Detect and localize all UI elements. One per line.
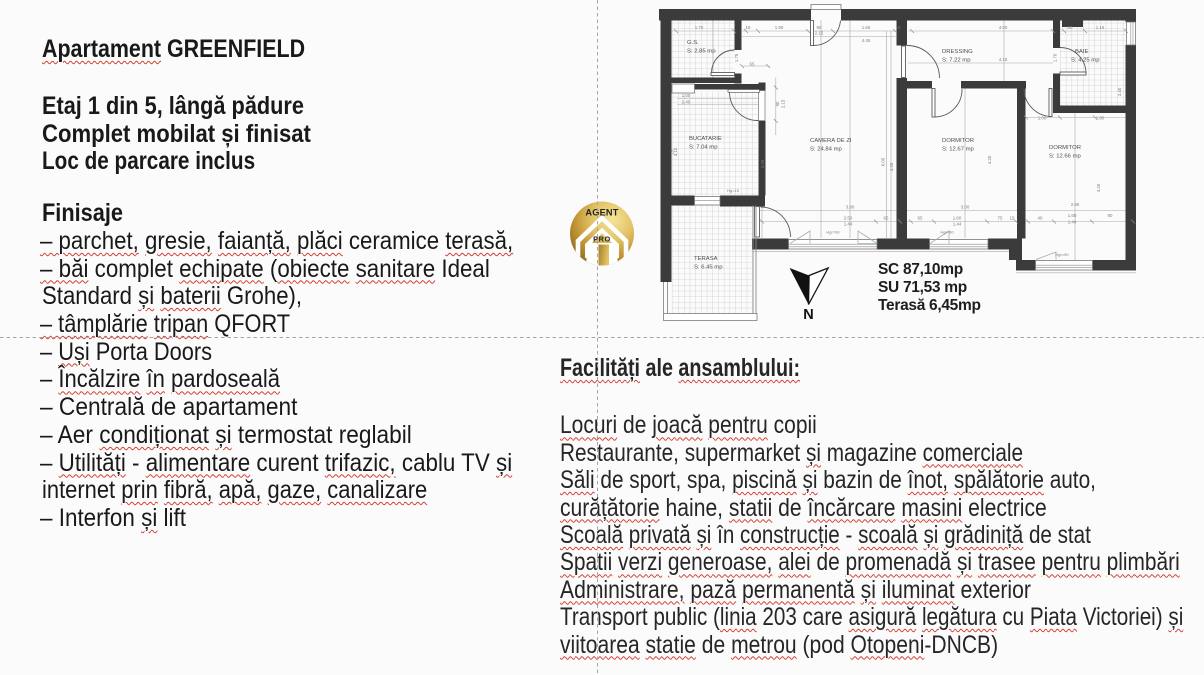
svg-text:2.40: 2.40 — [682, 100, 691, 105]
svg-text:3.00: 3.00 — [961, 205, 970, 210]
svg-text:Terasă 6,45mp: Terasă 6,45mp — [878, 297, 981, 314]
svg-text:3.40: 3.40 — [1117, 87, 1122, 96]
svg-text:1.00: 1.00 — [682, 93, 691, 98]
svg-text:3.80: 3.80 — [846, 205, 855, 210]
svg-text:SC 87,10mp: SC 87,10mp — [878, 261, 963, 278]
svg-text:S: 12.67 mp: S: 12.67 mp — [942, 147, 974, 153]
svg-text:60: 60 — [1068, 25, 1073, 30]
svg-text:Hg=15: Hg=15 — [727, 188, 740, 193]
svg-text:2.15: 2.15 — [815, 31, 824, 36]
svg-text:PRO: PRO — [593, 235, 611, 244]
svg-text:S: 6.45 mp: S: 6.45 mp — [694, 265, 723, 271]
svg-text:40: 40 — [1038, 216, 1043, 221]
svg-text:1.44: 1.44 — [1068, 220, 1077, 225]
svg-text:15: 15 — [670, 149, 675, 154]
svg-text:1.44: 1.44 — [844, 222, 853, 227]
svg-text:4.15: 4.15 — [999, 57, 1008, 62]
svg-text:1.70: 1.70 — [1053, 53, 1058, 62]
svg-text:Hgr=90: Hgr=90 — [826, 230, 840, 235]
svg-text:TERASA: TERASA — [694, 256, 718, 262]
svg-text:4.45: 4.45 — [862, 38, 871, 43]
svg-text:1.75: 1.75 — [734, 53, 739, 62]
svg-text:1.90: 1.90 — [775, 25, 784, 30]
svg-text:CAMERA DE ZI: CAMERA DE ZI — [810, 138, 852, 144]
svg-text:65: 65 — [918, 216, 923, 221]
svg-text:65: 65 — [884, 216, 889, 221]
svg-text:S: 24.84 mp: S: 24.84 mp — [810, 147, 842, 153]
svg-text:90: 90 — [775, 101, 780, 106]
svg-text:4.20: 4.20 — [987, 155, 992, 164]
svg-text:Hgr=90: Hgr=90 — [940, 230, 954, 235]
svg-text:AGENT: AGENT — [585, 208, 618, 218]
svg-text:15: 15 — [746, 25, 751, 30]
svg-text:1.44: 1.44 — [953, 222, 962, 227]
svg-text:DRESSING: DRESSING — [942, 49, 973, 55]
svg-text:75: 75 — [998, 216, 1003, 221]
svg-text:1.15: 1.15 — [1096, 25, 1105, 30]
svg-text:SU 71,53 mp: SU 71,53 mp — [878, 279, 967, 296]
svg-text:S: 2.85 mp: S: 2.85 mp — [687, 49, 716, 55]
svg-text:1.65: 1.65 — [862, 25, 871, 30]
svg-text:S: 7.22 mp: S: 7.22 mp — [942, 58, 971, 64]
svg-text:1.60: 1.60 — [953, 216, 962, 221]
svg-text:1.60: 1.60 — [1068, 213, 1077, 218]
svg-text:4.20: 4.20 — [1096, 183, 1101, 192]
svg-text:4.00: 4.00 — [999, 25, 1008, 30]
svg-text:BAIE: BAIE — [1075, 49, 1088, 55]
svg-text:15: 15 — [896, 25, 901, 30]
svg-text:1.00: 1.00 — [1038, 116, 1047, 121]
svg-text:DORMITOR: DORMITOR — [1049, 145, 1081, 151]
svg-text:4.45: 4.45 — [889, 162, 894, 171]
svg-text:2.15: 2.15 — [781, 99, 786, 108]
svg-text:90: 90 — [1108, 213, 1113, 218]
svg-text:BUCATARIE: BUCATARIE — [689, 136, 722, 142]
svg-text:G.S.: G.S. — [687, 40, 699, 46]
svg-text:N: N — [803, 307, 813, 323]
svg-text:6.05: 6.05 — [881, 157, 886, 166]
svg-text:2.50: 2.50 — [844, 216, 853, 221]
svg-text:2.90: 2.90 — [1071, 202, 1080, 207]
svg-text:S: 12.66 mp: S: 12.66 mp — [1049, 154, 1081, 160]
svg-text:1.90: 1.90 — [1096, 116, 1105, 121]
svg-text:S: 4.25 mp: S: 4.25 mp — [1071, 58, 1100, 64]
svg-text:2.35: 2.35 — [760, 159, 765, 168]
svg-text:65: 65 — [750, 62, 755, 67]
svg-text:1.75: 1.75 — [695, 25, 704, 30]
svg-text:S: 7.04 mp: S: 7.04 mp — [689, 145, 718, 151]
svg-text:DORMITOR: DORMITOR — [942, 138, 974, 144]
svg-text:90: 90 — [817, 25, 822, 30]
svg-text:Hgr=90: Hgr=90 — [1055, 252, 1069, 257]
